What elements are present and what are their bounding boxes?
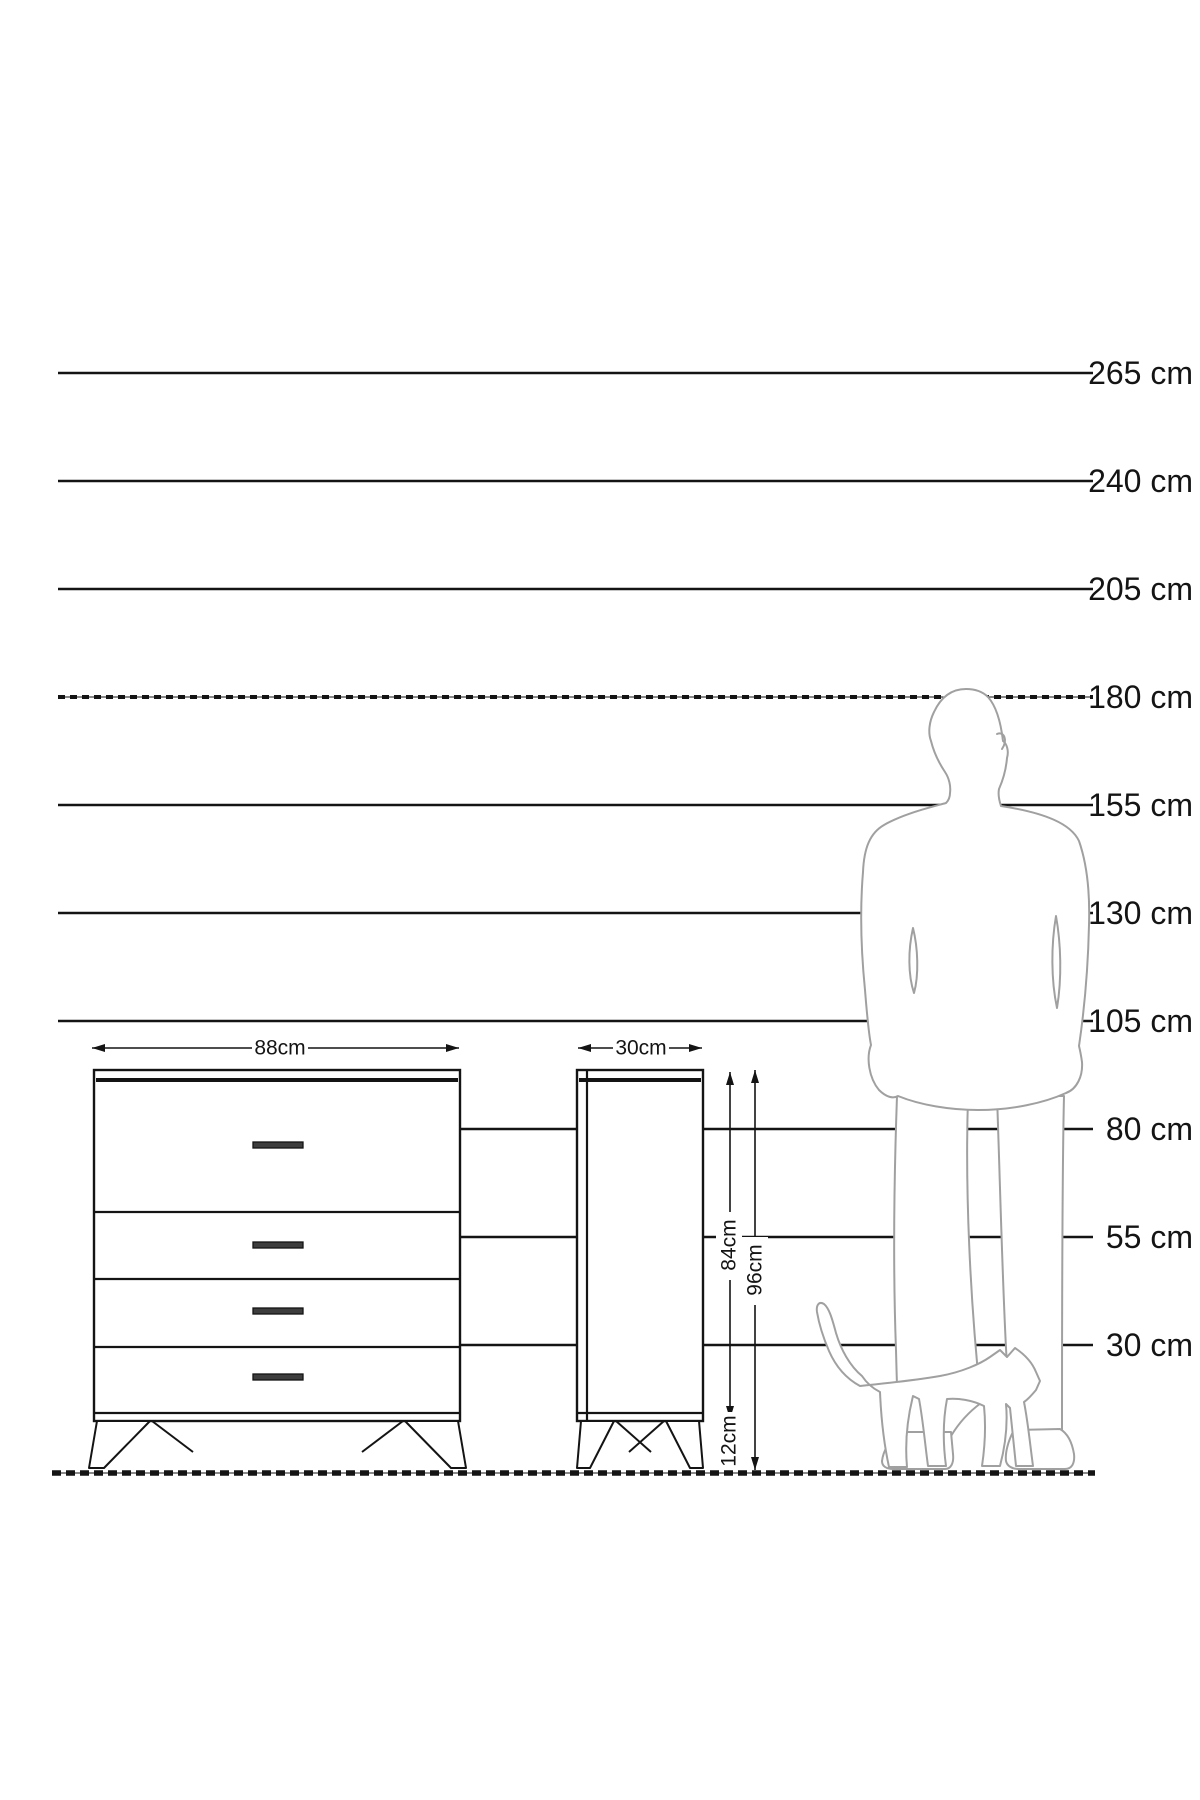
dresser-side-top-panel xyxy=(579,1078,701,1082)
dresser-front-left-leg xyxy=(89,1421,150,1468)
scale-label-55: 55 cm xyxy=(1106,1219,1193,1255)
scale-label-265: 265 cm xyxy=(1088,355,1193,391)
dimension-side-depth: 30cm xyxy=(578,1035,702,1061)
scale-label-105: 105 cm xyxy=(1088,1003,1193,1039)
dresser-side-left-leg xyxy=(577,1421,614,1468)
dimension-body-height: 84cm xyxy=(716,1072,742,1419)
drawer-handle-1 xyxy=(253,1142,303,1148)
drawer-handle-4 xyxy=(253,1374,303,1380)
height-scale-labels: 265 cm 240 cm 205 cm 180 cm 155 cm 130 c… xyxy=(1088,355,1193,1363)
scale-label-240: 240 cm xyxy=(1088,463,1193,499)
scale-label-130: 130 cm xyxy=(1088,895,1193,931)
scale-label-205: 205 cm xyxy=(1088,571,1193,607)
body-height-label: 84cm xyxy=(718,1219,741,1270)
dresser-front-left-rear-leg xyxy=(152,1421,193,1452)
diagram-canvas: 88cm 30cm 84cm 96cm xyxy=(0,0,1200,1800)
total-height-label: 96cm xyxy=(744,1244,767,1295)
dresser-front-top-panel xyxy=(96,1078,458,1082)
dresser-side-right-leg xyxy=(666,1421,703,1468)
side-depth-label: 30cm xyxy=(615,1037,666,1060)
dresser-side-body xyxy=(577,1070,703,1421)
dresser-front-view xyxy=(89,1070,466,1468)
dresser-front-right-rear-leg xyxy=(362,1421,403,1452)
drawer-handle-3 xyxy=(253,1308,303,1314)
drawer-handle-2 xyxy=(253,1242,303,1248)
dimension-front-width: 88cm xyxy=(92,1035,459,1061)
dimension-leg-height: 12cm xyxy=(717,1412,742,1470)
furniture-dimension-diagram: 88cm 30cm 84cm 96cm xyxy=(0,0,1200,1800)
scale-label-80: 80 cm xyxy=(1106,1111,1193,1147)
scale-label-30: 30 cm xyxy=(1106,1327,1193,1363)
dresser-front-right-leg xyxy=(405,1421,466,1468)
scale-label-155: 155 cm xyxy=(1088,787,1193,823)
dresser-side-view xyxy=(577,1070,703,1468)
scale-label-180: 180 cm xyxy=(1088,679,1193,715)
man-torso-head xyxy=(861,689,1089,1110)
front-width-label: 88cm xyxy=(254,1037,305,1060)
leg-height-label: 12cm xyxy=(718,1415,741,1466)
